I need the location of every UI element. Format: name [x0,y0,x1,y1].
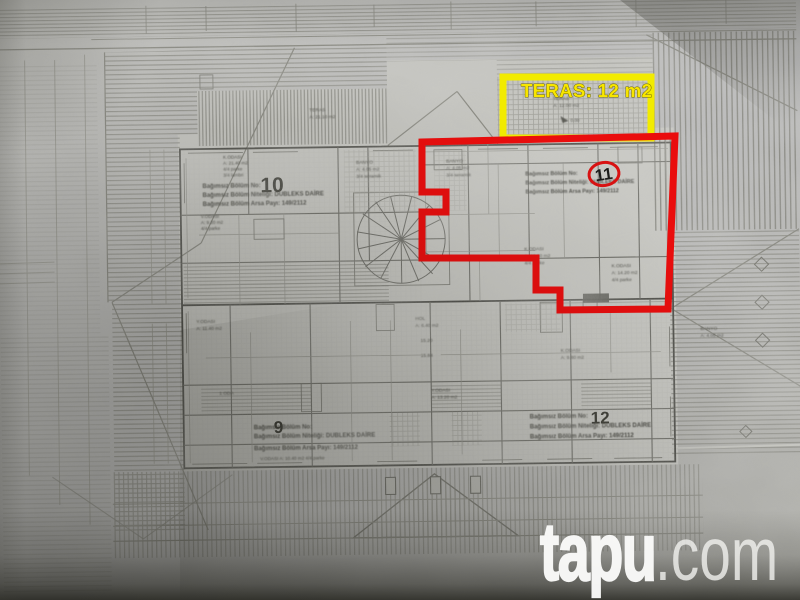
svg-text:tapu: tapu [540,506,656,598]
svg-text:.com: .com [655,514,778,597]
